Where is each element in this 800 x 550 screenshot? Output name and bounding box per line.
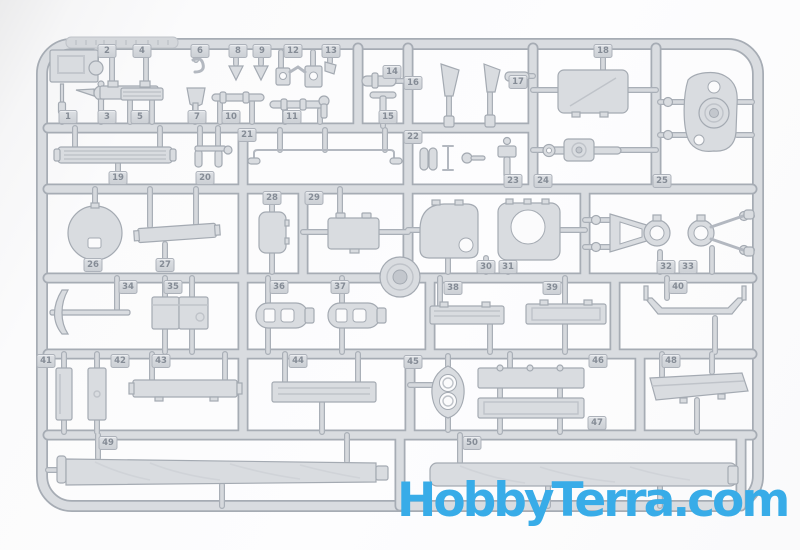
sprue-photo: 1234567891011121314151617181920212223242… (0, 0, 800, 550)
mold-text-strip (66, 37, 178, 48)
watermark: HobbyTerra.com (397, 477, 787, 524)
sprue-svg (0, 0, 800, 550)
